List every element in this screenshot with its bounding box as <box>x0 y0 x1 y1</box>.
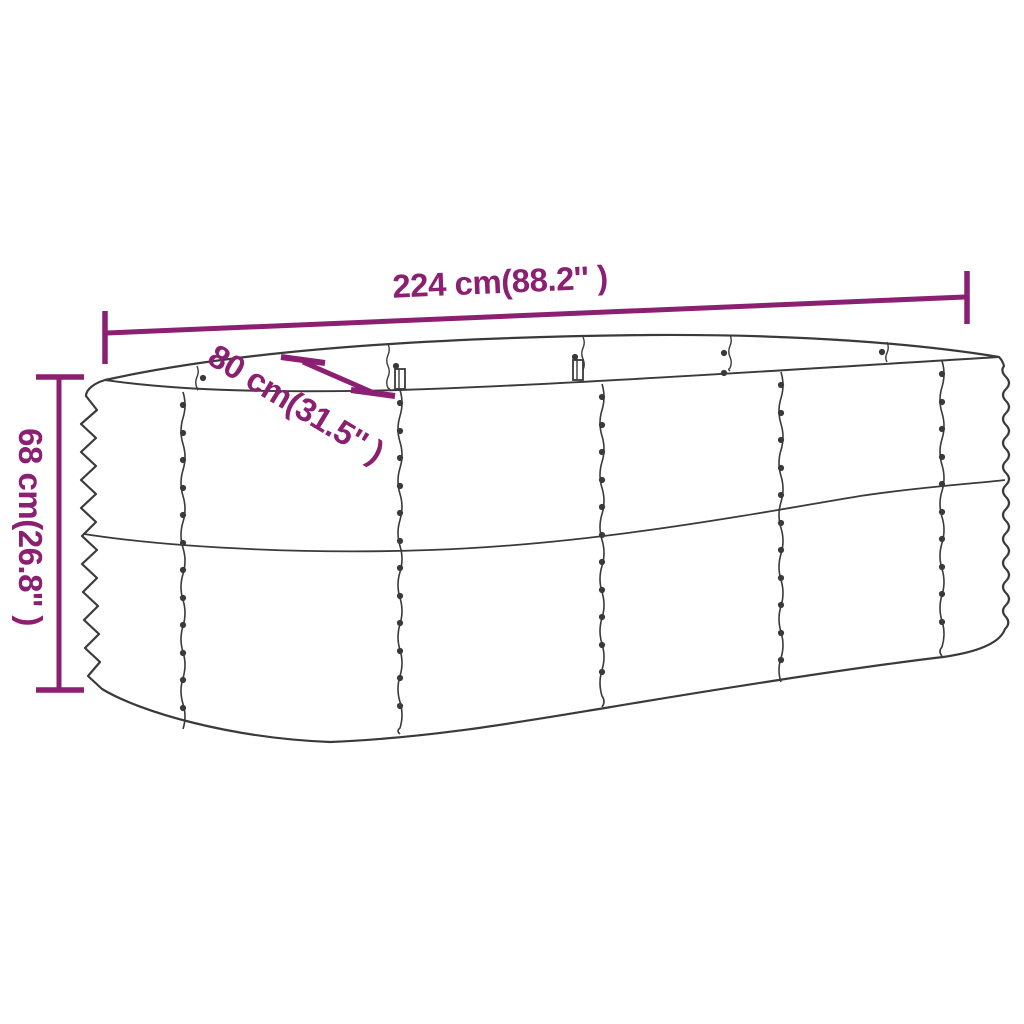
rivet-dot <box>180 622 186 628</box>
rivet-dot <box>599 669 605 675</box>
panel-seam <box>940 361 944 656</box>
rivet-dot <box>778 492 784 498</box>
rivet-dot <box>778 410 784 416</box>
rivet-dot <box>879 349 885 355</box>
rivet-dot <box>599 477 605 483</box>
width-dim-line <box>303 362 374 393</box>
rivet-dot <box>397 620 403 626</box>
panel-seam <box>600 384 604 707</box>
rivet-dot <box>397 675 403 681</box>
rivet-dot <box>778 465 784 471</box>
planter-illustration <box>81 335 1009 742</box>
back-rim-seam <box>729 335 732 371</box>
panel-seam <box>398 390 402 734</box>
rivet-dot <box>939 426 945 432</box>
rivet-dot <box>939 481 945 487</box>
panel-seams-and-rivets <box>180 335 945 734</box>
rivet-dot <box>778 547 784 553</box>
rivet-dot <box>599 587 605 593</box>
rivet-dot <box>397 703 403 709</box>
rivet-dot <box>180 402 186 408</box>
rivet-dot <box>180 677 186 683</box>
rivet-dot <box>180 430 186 436</box>
length-dimension <box>105 271 967 364</box>
rivet-dot <box>778 382 784 388</box>
planter-diagram-svg <box>0 0 1024 1024</box>
rivet-dot <box>180 485 186 491</box>
rivet-dot <box>939 371 945 377</box>
rivet-dot <box>397 455 403 461</box>
rivet-dot <box>397 565 403 571</box>
rivet-dot <box>397 538 403 544</box>
rivet-dot <box>939 619 945 625</box>
length-dim-line <box>107 297 965 333</box>
back-rim-seam <box>387 344 390 389</box>
rim-front-edge <box>105 357 999 391</box>
rivet-dot <box>939 509 945 515</box>
rivet-dot <box>599 642 605 648</box>
rivet-dot <box>599 504 605 510</box>
rivet-dot <box>599 614 605 620</box>
rivet-dot <box>599 532 605 538</box>
rivet-dot <box>180 540 186 546</box>
rivet-dot <box>599 559 605 565</box>
rivet-dot <box>939 591 945 597</box>
rivet-dot <box>939 564 945 570</box>
rivet-dot <box>397 510 403 516</box>
rivet-dot <box>180 457 186 463</box>
rivet-dot <box>180 650 186 656</box>
rivet-dot <box>939 399 945 405</box>
rivet-dot <box>397 400 403 406</box>
rivet-dot <box>397 648 403 654</box>
rivet-dot <box>599 449 605 455</box>
rivet-dot <box>599 394 605 400</box>
rivet-dot <box>180 595 186 601</box>
rivet-dot <box>778 630 784 636</box>
rivet-dot <box>778 657 784 663</box>
rivet-dot <box>180 512 186 518</box>
rivet-dot <box>778 602 784 608</box>
rivet-dot <box>599 422 605 428</box>
rivet-dot <box>778 520 784 526</box>
rivet-dot <box>721 350 727 356</box>
rivet-dot <box>200 375 206 381</box>
rivet-dot <box>778 575 784 581</box>
rivet-dot <box>397 593 403 599</box>
back-rim-seam <box>886 342 889 362</box>
rim-clip <box>395 369 405 389</box>
rivet-dot <box>180 705 186 711</box>
planter-outline <box>81 335 1009 742</box>
rivet-dot <box>721 370 727 376</box>
back-rim-seam <box>196 366 199 390</box>
rim-clip <box>573 360 583 380</box>
rivet-dot <box>778 437 784 443</box>
rivet-dot <box>939 536 945 542</box>
rivet-dot <box>939 454 945 460</box>
rivet-dot <box>180 567 186 573</box>
rivet-dot <box>397 483 403 489</box>
height-dimension <box>36 377 84 690</box>
diagram-canvas: 224 cm(88.2'' ) 80 cm(31.5'' ) 68 cm(26.… <box>0 0 1024 1024</box>
middle-panel-seam <box>84 480 1005 551</box>
rivet-dot <box>397 428 403 434</box>
